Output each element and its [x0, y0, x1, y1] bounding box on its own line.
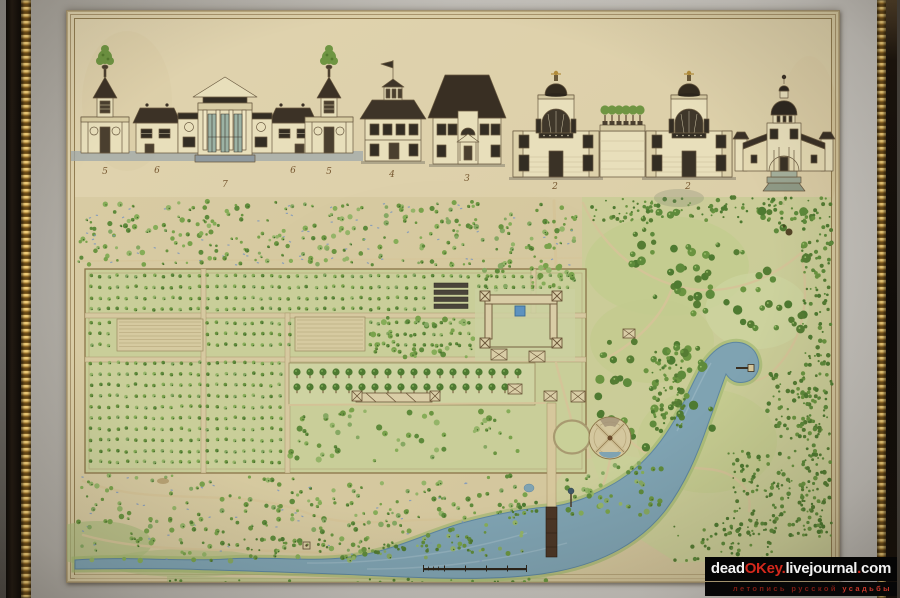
elevation-tall-roof-house [428, 75, 506, 167]
label-wing-left: 6 [154, 166, 160, 176]
circular-parterre [589, 417, 631, 459]
frame-gold-beading-left [21, 0, 31, 598]
label-pavilion-left: 5 [102, 167, 108, 177]
label-pavilion-right: 5 [326, 167, 332, 177]
watermark: deadOKey.livejournal.com летопись русско… [705, 557, 897, 597]
label-domed-left: 2 [551, 182, 558, 192]
court-pool [515, 306, 525, 316]
watermark-accent: OKey [745, 560, 782, 577]
estate-plan [67, 189, 834, 582]
estate-plan-drawing: 5 6 7 6 5 4 3 2 2 1 [67, 11, 839, 582]
watermark-tagline-main: летопись русской [733, 584, 838, 593]
small-pond [524, 484, 534, 492]
oval-lawn [554, 421, 590, 454]
watermark-site-name: deadOKey.livejournal.com [705, 557, 897, 582]
watermark-tld: com [861, 560, 891, 577]
label-tall-roof-house: 3 [464, 174, 470, 184]
watermark-domain: livejournal [785, 560, 857, 577]
watermark-prefix: dead [711, 560, 745, 577]
watermark-tagline: летопись русской усадьбы [705, 582, 897, 596]
picture-frame-left [6, 0, 21, 598]
statue-finial [782, 75, 786, 79]
label-wing-right: 6 [290, 166, 296, 176]
watermark-tagline-accent: усадьбы [842, 584, 892, 593]
kitchen-garden-plot-2 [295, 317, 365, 351]
pier-road [547, 403, 556, 507]
pier-dam [546, 507, 557, 557]
label-main-house: 7 [222, 180, 228, 190]
label-flag-house: 4 [388, 170, 395, 180]
frame-gold-beading-right [877, 0, 886, 598]
photograph-of-framed-estate-plan: 5 6 7 6 5 4 3 2 2 1 [0, 0, 900, 598]
kitchen-garden-plot [117, 319, 203, 351]
manor-courtyard-plan [475, 289, 575, 361]
service-building-row [352, 391, 440, 402]
artwork-paper: 5 6 7 6 5 4 3 2 2 1 [66, 10, 840, 583]
